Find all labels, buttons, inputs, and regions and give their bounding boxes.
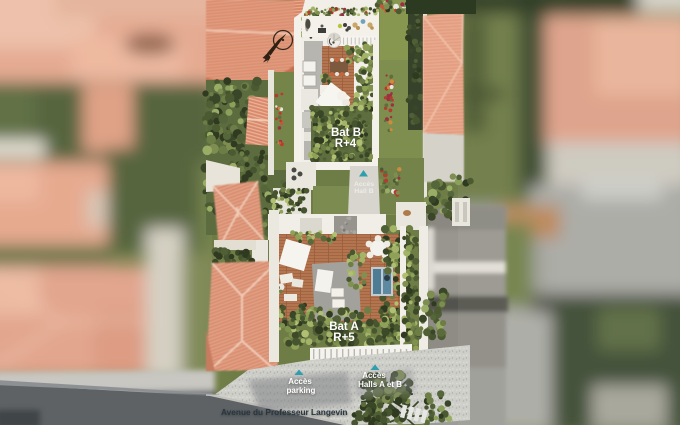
svg-text:Avenue du Professeur Langevin: Avenue du Professeur Langevin — [221, 407, 347, 417]
svg-text:Halls A et B: Halls A et B — [358, 380, 402, 389]
svg-text:R+5: R+5 — [333, 332, 355, 344]
svg-text:Accès: Accès — [354, 181, 374, 188]
svg-text:Hall B: Hall B — [354, 188, 373, 195]
svg-text:Accès: Accès — [362, 371, 386, 380]
svg-text:Accès: Accès — [288, 377, 312, 386]
svg-text:R+4: R+4 — [335, 138, 357, 150]
svg-text:parking: parking — [287, 386, 316, 395]
